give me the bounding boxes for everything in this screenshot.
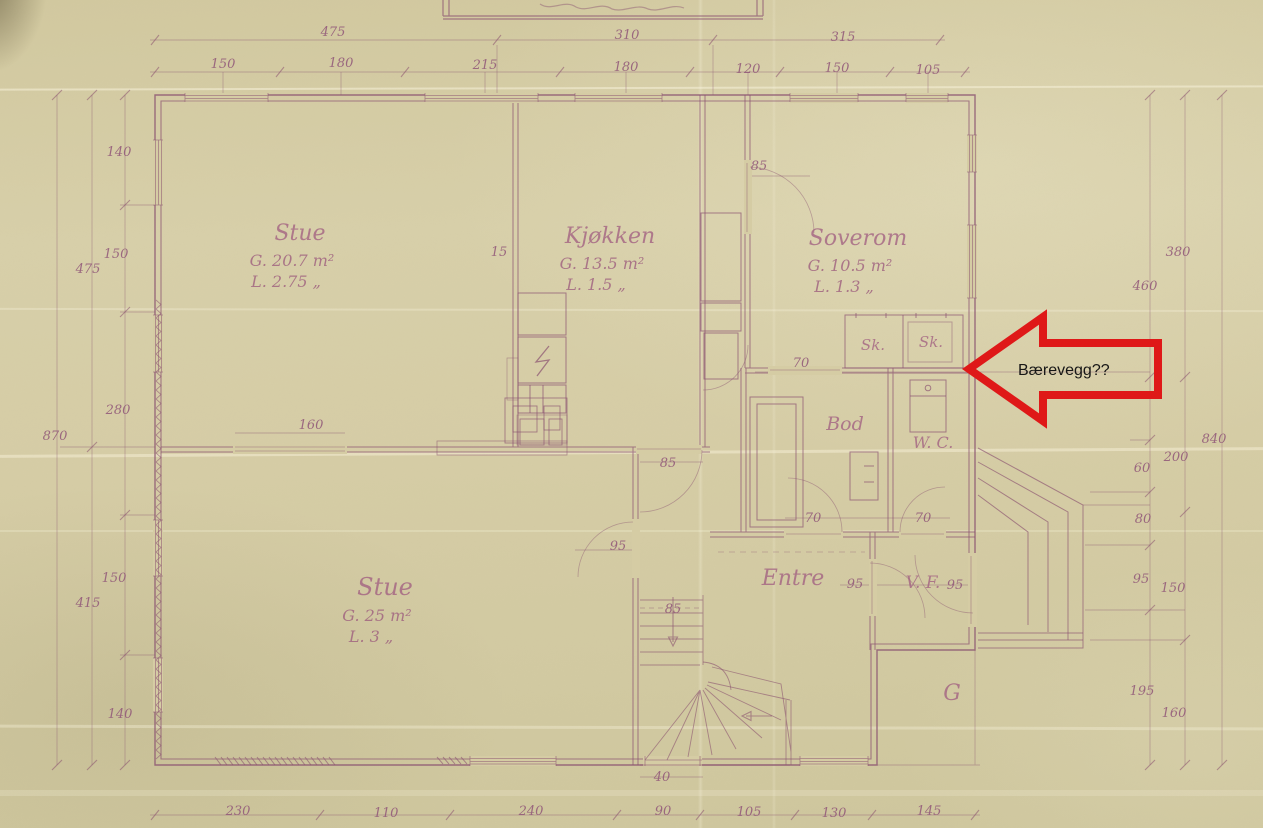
paper-grain: [0, 0, 1263, 828]
floorplan-scan: 4753103151501802151801201501051401504752…: [0, 0, 1263, 828]
scanned-floorplan-page: 4753103151501802151801201501051401504752…: [0, 0, 1263, 828]
